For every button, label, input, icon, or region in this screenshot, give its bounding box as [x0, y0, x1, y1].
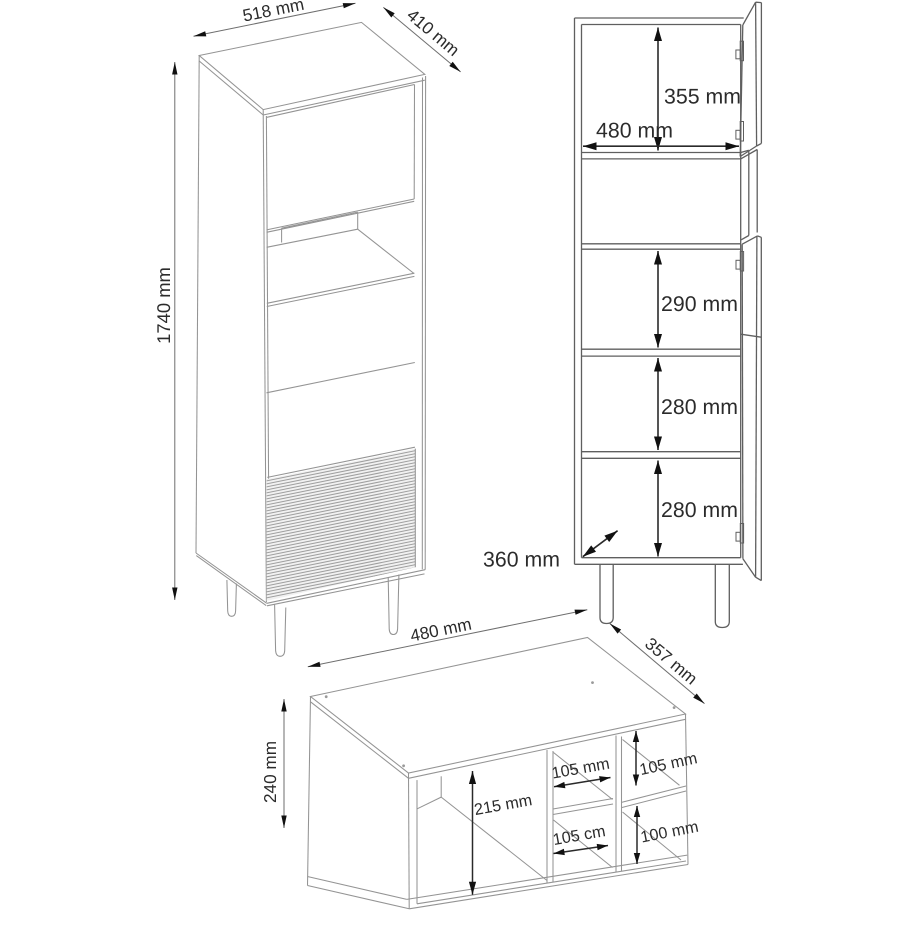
svg-text:355 mm: 355 mm: [664, 85, 741, 109]
svg-text:280 mm: 280 mm: [661, 498, 738, 522]
svg-text:240 mm: 240 mm: [260, 741, 280, 803]
svg-text:360 mm: 360 mm: [483, 548, 560, 572]
svg-text:290 mm: 290 mm: [661, 292, 738, 316]
svg-text:480 mm: 480 mm: [596, 119, 673, 143]
svg-text:280 mm: 280 mm: [661, 395, 738, 419]
svg-text:1740 mm: 1740 mm: [153, 267, 174, 344]
